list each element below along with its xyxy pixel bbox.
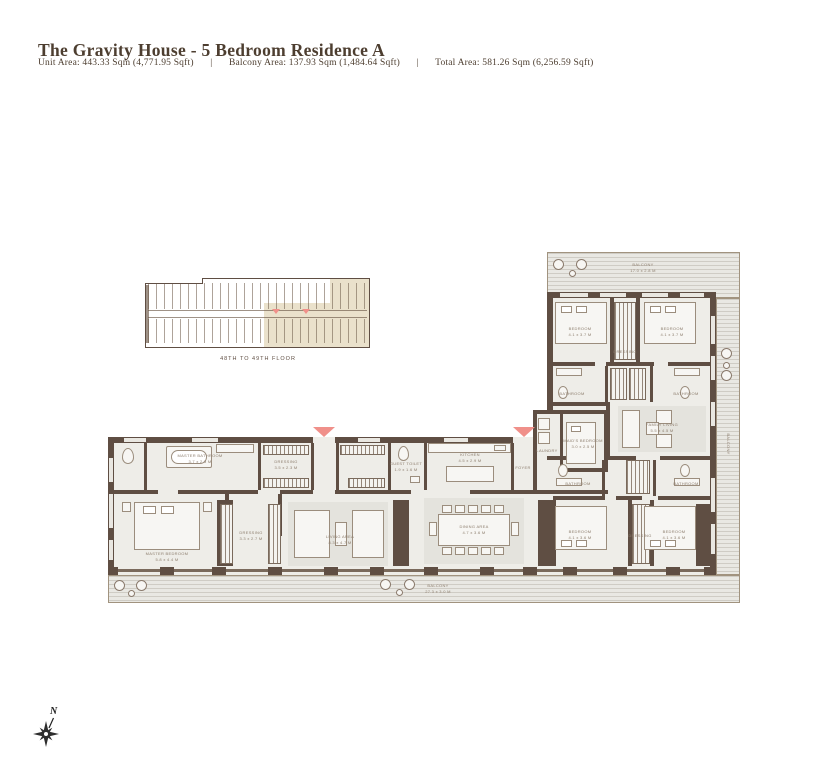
wall-segment bbox=[553, 362, 595, 366]
room-label: DRESSING bbox=[613, 349, 636, 355]
wall-segment bbox=[280, 490, 313, 494]
dining-chair bbox=[481, 547, 491, 555]
pillow bbox=[665, 306, 676, 313]
wardrobe-hatch bbox=[268, 504, 281, 564]
wall-segment bbox=[606, 362, 654, 366]
outdoor-chair bbox=[114, 580, 125, 591]
window bbox=[560, 293, 588, 297]
wall-segment bbox=[178, 490, 258, 494]
wall-segment bbox=[606, 402, 610, 460]
wardrobe-hatch bbox=[629, 368, 646, 400]
wardrobe-hatch bbox=[263, 445, 309, 455]
wall-pier bbox=[424, 567, 438, 575]
dining-chair bbox=[494, 547, 504, 555]
washing-machine bbox=[538, 432, 550, 444]
dining-chair bbox=[455, 505, 465, 513]
pillow bbox=[576, 306, 587, 313]
sofa bbox=[294, 510, 330, 558]
pillow bbox=[561, 306, 572, 313]
wall-segment bbox=[602, 460, 605, 496]
outdoor-table bbox=[569, 270, 576, 277]
wall-pier bbox=[666, 567, 680, 575]
room-label: BATHROOM bbox=[673, 391, 698, 397]
room-label: BATHROOM bbox=[559, 391, 584, 397]
window bbox=[711, 524, 715, 554]
floor-plan-page: The Gravity House - 5 Bedroom Residence … bbox=[0, 0, 837, 760]
window bbox=[711, 316, 715, 344]
balcony-deck-bottom bbox=[108, 575, 740, 603]
pillow bbox=[161, 506, 174, 514]
wall-segment bbox=[533, 410, 608, 414]
kitchen-island bbox=[446, 466, 494, 482]
balcony-area: Balcony Area: 137.93 Sqm (1,484.64 Sqft) bbox=[229, 58, 400, 68]
wall-segment bbox=[511, 443, 514, 490]
area-summary: Unit Area: 443.33 Sqm (4,771.95 Sqft) | … bbox=[38, 58, 594, 68]
window bbox=[600, 293, 626, 297]
wall-pier bbox=[370, 567, 384, 575]
toilet bbox=[122, 448, 134, 464]
wall-segment bbox=[660, 456, 710, 460]
room-label: MAID'S BEDROOM3.0 x 2.5 M bbox=[563, 438, 602, 450]
room-label: DRESSING bbox=[628, 533, 651, 539]
room-label: MASTER BATHROOM3.7 x 2.3 M bbox=[177, 453, 222, 465]
pillow bbox=[650, 540, 661, 547]
outdoor-chair bbox=[576, 259, 587, 270]
nightstand bbox=[122, 502, 131, 512]
room-label: BEDROOM4.1 x 3.6 M bbox=[662, 529, 685, 541]
wall-segment bbox=[553, 496, 605, 500]
wall-segment bbox=[605, 366, 608, 402]
entry-marker-icon bbox=[313, 427, 335, 437]
dining-chair bbox=[468, 547, 478, 555]
dining-chair bbox=[429, 522, 437, 536]
room-label: DINING AREA4.7 x 3.6 M bbox=[459, 524, 488, 536]
bed bbox=[555, 506, 607, 550]
window bbox=[711, 478, 715, 512]
wardrobe-hatch bbox=[340, 445, 385, 455]
wall-segment bbox=[658, 496, 710, 500]
dining-chair bbox=[455, 547, 465, 555]
wall-segment bbox=[653, 460, 656, 496]
column-block bbox=[696, 504, 712, 566]
room-label: FOYER bbox=[515, 465, 530, 471]
room-label: BATHROOM bbox=[673, 481, 698, 487]
room-label: BATHROOM bbox=[565, 481, 590, 487]
wall-pier bbox=[324, 567, 338, 575]
window bbox=[711, 402, 715, 426]
room-label: DRESSING3.5 x 2.3 M bbox=[274, 459, 297, 471]
room-label: BEDROOM4.1 x 3.7 M bbox=[660, 326, 683, 338]
vanity bbox=[556, 368, 582, 376]
room-label: MASTER BEDROOM5.8 x 4.4 M bbox=[146, 551, 189, 563]
compass-north-label: N bbox=[49, 706, 58, 717]
balcony-label: BALCONY17.0 x 2.8 M bbox=[630, 262, 656, 274]
compass-center bbox=[44, 732, 49, 737]
dining-chair bbox=[468, 505, 478, 513]
outdoor-chair bbox=[404, 579, 415, 590]
wall-pier bbox=[613, 567, 627, 575]
room-label: GUEST TOILET1.9 x 1.6 M bbox=[390, 461, 422, 473]
main-floor-plan: MASTER BATHROOM3.7 x 2.3 M DRESSING3.5 x… bbox=[108, 252, 740, 603]
entry-marker-icon bbox=[513, 427, 535, 437]
vanity bbox=[216, 444, 254, 453]
sofa bbox=[352, 510, 384, 558]
window bbox=[109, 494, 113, 528]
window bbox=[358, 438, 380, 442]
pillow bbox=[143, 506, 156, 514]
room-label: LAUNDRY bbox=[536, 448, 557, 454]
window bbox=[109, 458, 113, 482]
bed bbox=[134, 502, 200, 550]
compass-icon: N bbox=[26, 702, 70, 754]
column-block bbox=[393, 500, 409, 566]
wall-pier bbox=[563, 567, 577, 575]
outdoor-chair bbox=[721, 370, 732, 381]
window bbox=[124, 438, 146, 442]
wall-segment bbox=[424, 443, 427, 490]
sink bbox=[410, 476, 420, 483]
wall-segment bbox=[533, 490, 608, 494]
dining-chair bbox=[494, 505, 504, 513]
compass-needle bbox=[49, 718, 54, 728]
wall-segment bbox=[650, 366, 653, 402]
dining-chair bbox=[481, 505, 491, 513]
pillow bbox=[576, 540, 587, 547]
wall-segment bbox=[553, 402, 610, 406]
pillow bbox=[665, 540, 676, 547]
room-label: DRESSING3.3 x 2.7 M bbox=[239, 530, 262, 542]
wall-pier bbox=[480, 567, 494, 575]
outdoor-table bbox=[396, 589, 403, 596]
wardrobe-hatch bbox=[348, 478, 385, 488]
pillow bbox=[561, 540, 572, 547]
window bbox=[680, 293, 704, 297]
washing-machine bbox=[538, 418, 550, 430]
wall-segment bbox=[144, 443, 147, 490]
room-label: KITCHEN4.5 x 2.9 M bbox=[458, 452, 481, 464]
wall-pier bbox=[108, 567, 118, 575]
wall-pier bbox=[523, 567, 537, 575]
separator: | bbox=[210, 58, 212, 68]
wall-segment bbox=[258, 443, 261, 490]
window bbox=[109, 540, 113, 560]
wardrobe-hatch bbox=[263, 478, 309, 488]
room-label: LIVING AREA8.3 x 4.7 M bbox=[326, 534, 354, 546]
nightstand bbox=[203, 502, 212, 512]
unit-area: Unit Area: 443.33 Sqm (4,771.95 Sqft) bbox=[38, 58, 194, 68]
window bbox=[444, 438, 468, 442]
window bbox=[711, 356, 715, 380]
toilet bbox=[680, 464, 690, 477]
outdoor-table bbox=[723, 362, 730, 369]
outdoor-chair bbox=[380, 579, 391, 590]
wardrobe-hatch bbox=[220, 504, 233, 564]
wall-segment bbox=[335, 490, 411, 494]
sofa bbox=[622, 410, 640, 448]
balcony-label: BALCONY27.3 x 3.0 M bbox=[425, 583, 451, 595]
dining-chair bbox=[511, 522, 519, 536]
bed bbox=[644, 506, 696, 550]
separator: | bbox=[417, 58, 419, 68]
total-area: Total Area: 581.26 Sqm (6,256.59 Sqft) bbox=[435, 58, 593, 68]
wall-segment bbox=[336, 443, 339, 490]
wall-segment bbox=[668, 362, 710, 366]
dining-chair bbox=[442, 505, 452, 513]
wall-segment bbox=[114, 490, 158, 494]
window bbox=[642, 293, 668, 297]
wardrobe-hatch bbox=[626, 460, 650, 494]
toilet bbox=[558, 464, 568, 477]
window bbox=[192, 438, 218, 442]
vanity bbox=[674, 368, 700, 376]
wall-pier bbox=[268, 567, 282, 575]
outdoor-chair bbox=[136, 580, 147, 591]
room-label: BEDROOM4.1 x 3.7 M bbox=[568, 326, 591, 338]
armchair bbox=[656, 434, 672, 448]
outdoor-table bbox=[128, 590, 135, 597]
room-label: FAMILY LIVING5.5 x 4.5 M bbox=[646, 422, 678, 434]
wall-segment bbox=[547, 298, 553, 410]
balcony-label: BALCONY bbox=[725, 433, 731, 454]
wall-segment bbox=[470, 490, 533, 494]
pillow bbox=[650, 306, 661, 313]
outdoor-chair bbox=[553, 259, 564, 270]
wall-pier bbox=[704, 567, 716, 575]
wall-pier bbox=[212, 567, 226, 575]
wardrobe-hatch bbox=[610, 368, 627, 400]
wall-pier bbox=[160, 567, 174, 575]
outdoor-chair bbox=[721, 348, 732, 359]
toilet bbox=[398, 446, 409, 461]
kitchen-sink bbox=[494, 445, 506, 451]
room-label: BEDROOM4.1 x 3.6 M bbox=[568, 529, 591, 541]
dining-chair bbox=[442, 547, 452, 555]
wall-segment bbox=[311, 443, 314, 490]
column-block bbox=[538, 500, 556, 566]
pillow bbox=[571, 426, 581, 432]
